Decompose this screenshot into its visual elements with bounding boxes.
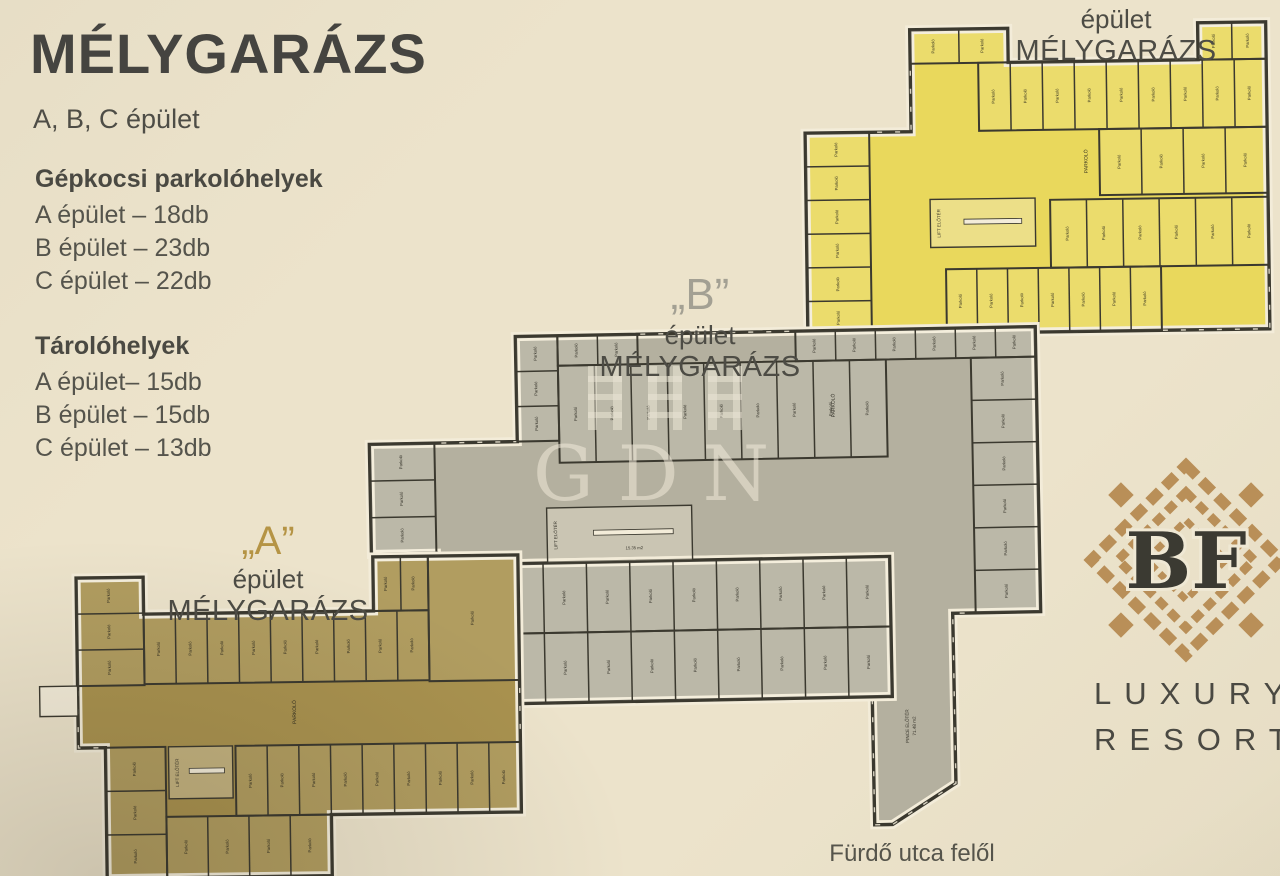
stall-divider [489, 742, 490, 812]
lift-lobby-label: LIFT ELŐTÉR [935, 208, 941, 237]
stall-divider [397, 611, 398, 681]
stall-divider [806, 166, 870, 167]
stall-label: Parkoló [132, 761, 137, 776]
stall-divider [875, 330, 876, 360]
stall-label: Parkoló [834, 209, 839, 224]
stall-label: Parkoló [988, 293, 993, 308]
lift-shaft [189, 768, 224, 773]
stall-label: Parkoló [346, 639, 351, 654]
stall-label: Parkoló [1200, 153, 1205, 168]
stall-divider [249, 816, 250, 876]
stall-label: Parkoló [561, 590, 566, 605]
stall-label: Parkoló [573, 406, 578, 421]
stall-label: Parkoló [374, 771, 379, 786]
plan-area-label: 71.48 m2 [912, 716, 917, 736]
stall-divider [267, 745, 268, 815]
stall-divider [208, 816, 209, 876]
stall-label: Parkoló [573, 343, 578, 358]
stall-label: Parkoló [833, 142, 838, 157]
stall-label: Parkoló [1111, 291, 1116, 306]
building-c-epulet: épület [1015, 6, 1216, 33]
stall-divider [1170, 60, 1171, 128]
stall-label: Parkoló [1137, 225, 1142, 240]
plan-area-label: PARKOLÓ [291, 700, 298, 724]
stall-label: Parkoló [282, 639, 287, 654]
logo-tip-icon [1238, 612, 1263, 637]
stall-label: Parkoló [1002, 498, 1007, 513]
stall-divider [807, 267, 871, 268]
stall-label: Parkoló [132, 805, 137, 820]
stall-divider [106, 791, 166, 792]
stall-label: Parkoló [399, 528, 404, 543]
stall-divider [1234, 59, 1235, 127]
building-c-letter: „C” [1015, 0, 1216, 2]
stall-label: Parkoló [1150, 87, 1155, 102]
stall-divider [835, 330, 836, 360]
stall-label: Parkoló [851, 337, 856, 352]
stall-divider [1141, 129, 1142, 195]
stall-divider [807, 301, 871, 302]
lift-shaft [964, 218, 1022, 224]
lift-lobby-label: LIFT ELŐTÉR [552, 520, 559, 549]
stall-label: Parkoló [734, 587, 739, 602]
stall-label: Parkoló [183, 839, 188, 854]
stall-label: Parkoló [836, 310, 841, 325]
stall-label: Parkoló [563, 660, 568, 675]
stall-label: Parkoló [778, 586, 783, 601]
stall-label: Parkoló [343, 772, 348, 787]
building-a-letter: „A” [167, 520, 368, 562]
stall-label: Parkoló [1050, 292, 1055, 307]
stall-divider [807, 233, 871, 234]
stall-label: Parkoló [383, 576, 388, 591]
stall-divider [806, 200, 870, 201]
stall-label: Parkoló [279, 772, 284, 787]
stall-label: Parkoló [501, 769, 506, 784]
stall-label: Parkoló [1019, 292, 1024, 307]
stall-divider [995, 327, 996, 357]
building-a-label: „A” épület MÉLYGARÁZS [167, 520, 368, 627]
stall-label: Parkoló [682, 404, 687, 419]
stall-divider [1232, 22, 1233, 59]
stall-label: Parkoló [469, 770, 474, 785]
logo-word-luxury: LUXURY [1094, 676, 1280, 712]
building-b-letter: „B” [599, 272, 800, 318]
stall-divider [915, 329, 916, 359]
stall-label: Parkoló [470, 610, 475, 625]
stall-label: Parkoló [533, 381, 538, 396]
stall-label: Parkoló [1174, 224, 1179, 239]
stall-label: Parkoló [251, 640, 256, 655]
building-c-plan: ParkolóParkolóParkolóParkolóParkolóParko… [804, 22, 1270, 335]
logo-tip-icon [1108, 482, 1133, 507]
stall-divider [290, 815, 291, 876]
logo-monogram: BF [1125, 516, 1246, 607]
stall-label: Parkoló [891, 337, 896, 352]
stall-divider [955, 328, 956, 358]
stall-divider [1138, 61, 1139, 129]
stall-label: Parkoló [866, 654, 871, 669]
stall-divider [330, 745, 331, 815]
stall-label: Parkoló [755, 403, 760, 418]
stall-label: Parkoló [930, 39, 935, 54]
plan-area-label: PINCE ELŐTÉR [904, 709, 911, 743]
stall-label: Parkoló [106, 624, 111, 639]
building-c-melygarazs: MÉLYGARÁZS [1015, 36, 1216, 66]
stall-label: Parkoló [811, 338, 816, 353]
stall-label: Parkoló [307, 838, 312, 853]
stall-label: Parkoló [791, 402, 796, 417]
stall-label: Parkoló [1000, 413, 1005, 428]
stall-divider [457, 743, 458, 813]
stall-label: Parkoló [958, 293, 963, 308]
stall-label: Parkoló [931, 336, 936, 351]
stall-label: Parkoló [187, 641, 192, 656]
stall-label: Parkoló [1065, 226, 1070, 241]
stall-label: Parkoló [1001, 456, 1006, 471]
stall-label: Parkoló [1004, 583, 1009, 598]
stall-divider [1010, 62, 1011, 130]
plan-annotation-box [40, 686, 78, 717]
stall-label: Parkoló [406, 771, 411, 786]
stall-label: Parkoló [779, 656, 784, 671]
stall-divider [299, 745, 300, 815]
stall-label: Parkoló [1116, 154, 1121, 169]
stall-label: Parkoló [409, 638, 414, 653]
stall-label: Parkoló [438, 770, 443, 785]
stall-label: Parkoló [314, 639, 319, 654]
stall-label: Parkoló [532, 346, 537, 361]
stall-divider [1074, 61, 1075, 129]
stall-label: Parkoló [1158, 153, 1163, 168]
stall-label: Parkoló [133, 849, 138, 864]
stall-divider [1202, 60, 1203, 128]
plan-area-label: PARKOLÓ [829, 393, 836, 417]
stall-divider [425, 743, 426, 813]
gdn-watermark-text: GDN [533, 429, 793, 518]
stall-label: Parkoló [225, 839, 230, 854]
stall-label: Parkoló [1119, 87, 1124, 102]
stall-label: Parkoló [1242, 152, 1247, 167]
building-b-epulet: épület [599, 322, 800, 349]
stall-label: Parkoló [1210, 224, 1215, 239]
stall-label: Parkoló [106, 588, 111, 603]
stall-divider [517, 406, 559, 407]
stall-label: Parkoló [1142, 291, 1147, 306]
stall-label: Parkoló [1003, 541, 1008, 556]
logo-tip-icon [1108, 612, 1133, 637]
stall-divider [597, 335, 598, 365]
stall-divider [107, 834, 167, 835]
stall-divider [1123, 199, 1124, 267]
stall-label: Parkoló [606, 659, 611, 674]
stall-label: Parkoló [399, 491, 404, 506]
stall-label: Parkoló [692, 657, 697, 672]
stall-label: Parkoló [864, 401, 869, 416]
stall-label: Parkoló [248, 773, 253, 788]
stall-divider [1042, 62, 1043, 130]
stall-label: Parkoló [156, 641, 161, 656]
stall-label: Parkoló [266, 838, 271, 853]
stall-label: Parkoló [1087, 87, 1092, 102]
stall-label: Parkoló [1246, 223, 1251, 238]
stall-label: Parkoló [649, 658, 654, 673]
stall-label: Parkoló [1081, 292, 1086, 307]
stall-label: Parkoló [1011, 334, 1016, 349]
stall-label: Parkoló [1101, 225, 1106, 240]
stall-label: Parkoló [821, 585, 826, 600]
stall-label: Parkoló [410, 576, 415, 591]
stall-divider [1232, 197, 1233, 265]
stall-label: Parkoló [1245, 33, 1250, 48]
stall-label: Parkoló [835, 243, 840, 258]
stall-divider [1195, 198, 1196, 266]
stall-label: Parkoló [604, 589, 609, 604]
stall-divider [1086, 199, 1087, 267]
stall-label: Parkoló [1055, 88, 1060, 103]
stall-label: Parkoló [107, 660, 112, 675]
stall-label: Parkoló [1214, 86, 1219, 101]
stall-divider [1106, 61, 1107, 129]
stall-label: Parkoló [398, 454, 403, 469]
building-b-label: „B” épület MÉLYGARÁZS [599, 272, 800, 383]
lift-lobby-label: LIFT ELŐTÉR [174, 758, 180, 787]
stall-label: Parkoló [219, 640, 224, 655]
street-label: Fürdő utca felől [829, 840, 994, 868]
lift-shaft [593, 529, 673, 536]
stall-label: Parkoló [979, 38, 984, 53]
stall-label: Parkoló [1000, 371, 1005, 386]
stall-label: Parkoló [835, 276, 840, 291]
stall-divider [394, 744, 395, 814]
stall-label: Parkoló [864, 584, 869, 599]
stall-label: Parkoló [1023, 88, 1028, 103]
lift-lobby-area: 15.35 m2 [626, 545, 644, 550]
stall-label: Parkoló [691, 587, 696, 602]
stall-divider [1130, 267, 1131, 331]
stall-label: Parkoló [377, 638, 382, 653]
stall-divider [1069, 268, 1070, 332]
floorplan-svg: ParkolóParkolóParkolóParkolóParkolóParko… [0, 0, 1280, 876]
stall-label: Parkoló [834, 175, 839, 190]
building-a-melygarazs: MÉLYGARÁZS [167, 596, 368, 626]
building-b-melygarazs: MÉLYGARÁZS [599, 352, 800, 382]
stall-label: Parkoló [1182, 86, 1187, 101]
plan-area-label: PARKOLÓ [1082, 149, 1089, 173]
logo-word-resort: RESORT [1094, 722, 1280, 758]
stall-label: Parkoló [991, 89, 996, 104]
stall-label: Parkoló [1246, 85, 1251, 100]
poster-photo: ParkolóParkolóParkolóParkolóParkolóParko… [0, 0, 1280, 876]
stall-label: Parkoló [822, 655, 827, 670]
stall-label: Parkoló [648, 588, 653, 603]
stall-label: Parkoló [971, 335, 976, 350]
stall-label: Parkoló [311, 772, 316, 787]
stall-divider [1225, 127, 1226, 193]
stall-divider [77, 613, 144, 614]
stall-divider [1100, 267, 1101, 331]
stall-divider [77, 649, 144, 650]
stall-divider [1159, 198, 1160, 266]
bf-logo: BF [1043, 417, 1280, 703]
stall-divider [400, 557, 401, 611]
building-c-label: „C” épület MÉLYGARÁZS [1015, 0, 1216, 67]
building-a-epulet: épület [167, 566, 368, 593]
stall-label: Parkoló [736, 657, 741, 672]
logo-tip-icon [1238, 482, 1263, 507]
stall-divider [362, 744, 363, 814]
stall-divider [1183, 128, 1184, 194]
stall-divider [516, 371, 558, 372]
